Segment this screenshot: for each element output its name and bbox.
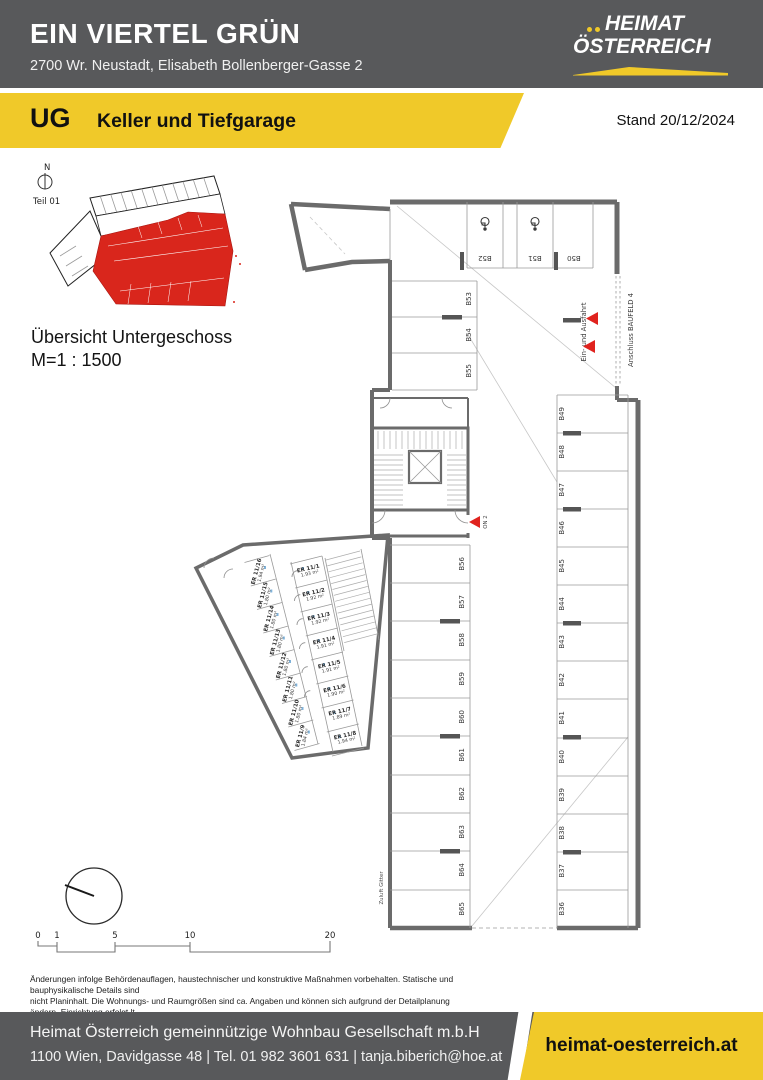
- entrance-number-label: ON 2: [483, 515, 489, 528]
- plan-date: Stand 20/12/2024: [617, 112, 735, 129]
- logo-word-heimat: HEIMAT: [605, 12, 684, 35]
- scale-tick: 1: [54, 931, 59, 941]
- drive-lane-lines: [397, 206, 628, 926]
- parking-label: B47: [557, 483, 566, 496]
- logo-word-oesterreich: ÖSTERREICH: [573, 35, 743, 58]
- parking-label: B60: [457, 710, 466, 724]
- header: EIN VIERTEL GRÜN 2700 Wr. Neustadt, Elis…: [0, 0, 763, 88]
- parking-label: B57: [457, 595, 466, 608]
- scale-bar: 0 1 5 10 20: [30, 928, 350, 958]
- compass-symbol: [58, 860, 130, 932]
- parking-label: B43: [557, 635, 566, 648]
- plan-document-page: EIN VIERTEL GRÜN 2700 Wr. Neustadt, Elis…: [0, 0, 763, 1080]
- parking-column-right: B49 B48 B47 B46 B45 B44 B43 B42 B41 B40 …: [557, 395, 628, 928]
- project-title: EIN VIERTEL GRÜN: [30, 18, 300, 50]
- project-address: 2700 Wr. Neustadt, Elisabeth Bollenberge…: [30, 58, 363, 74]
- floor-plan: B52 B51 B50 B53 B54 B55 Ein- und Ausfahr…: [190, 192, 650, 940]
- footer-website-banner: heimat-oesterreich.at: [520, 1012, 763, 1080]
- footer-contact: 1100 Wien, Davidgasse 48 | Tel. 01 982 3…: [30, 1049, 502, 1065]
- level-code: UG: [30, 103, 71, 134]
- website-link[interactable]: heimat-oesterreich.at: [545, 1035, 737, 1057]
- storage-annex: ER 11/1 1.93 m² ER 11/2 1.92 m² ER 11/3 …: [196, 535, 388, 758]
- stairwell: ON 2: [372, 398, 489, 538]
- parking-label: B36: [557, 902, 566, 916]
- parking-label: B40: [557, 750, 566, 764]
- entry-exit-label: Ein- und Ausfahrt: [580, 302, 588, 361]
- baufeld-label: Anschluss BAUFELD 4: [627, 293, 635, 367]
- parking-label: B51: [528, 254, 541, 263]
- parking-label: B54: [464, 328, 473, 342]
- zuluft-gitter-label: Zuluft Gitter: [379, 871, 385, 905]
- parking-label: B45: [557, 559, 566, 572]
- parking-label: B65: [457, 902, 466, 915]
- scale-tick: 20: [325, 931, 336, 941]
- parking-label: B52: [478, 254, 491, 263]
- part-label: Teil 01: [32, 197, 60, 207]
- garage-walls: [372, 202, 638, 928]
- parking-label: B58: [457, 633, 466, 647]
- parking-label: B39: [557, 788, 566, 802]
- logo-swoosh-icon: [573, 66, 728, 76]
- level-title: Keller und Tiefgarage: [97, 110, 296, 133]
- umlaut-dots-icon: [587, 27, 600, 32]
- scale-tick: 5: [112, 931, 117, 941]
- entry-ramp: [291, 204, 390, 270]
- scale-tick: 0: [35, 931, 40, 941]
- parking-label: B42: [557, 673, 566, 686]
- entry-exit-annotation: Ein- und Ausfahrt Anschluss BAUFELD 4: [563, 293, 635, 367]
- parking-label: B44: [557, 597, 566, 611]
- parking-column-left: B56 B57 B58 B59 B60 B61 B62 B63 B64 B65: [390, 545, 470, 928]
- parking-label: B55: [464, 364, 473, 377]
- level-banner: UG Keller und Tiefgarage Stand 20/12/202…: [0, 93, 763, 148]
- parking-label: B41: [557, 711, 566, 724]
- parking-label: B63: [457, 825, 466, 838]
- heimat-oesterreich-logo: HEIMAT ÖSTERREICH: [573, 12, 743, 81]
- parking-label: B37: [557, 864, 566, 877]
- parking-label: B50: [567, 254, 581, 263]
- parking-label: B49: [557, 407, 566, 421]
- north-label: N: [44, 163, 50, 173]
- parking-label: B48: [557, 445, 566, 459]
- parking-label: B38: [557, 826, 566, 840]
- footer: Heimat Österreich gemeinnützige Wohnbau …: [0, 1012, 763, 1080]
- parking-label: B53: [464, 292, 473, 305]
- parking-label: B61: [457, 748, 466, 761]
- parking-label: B56: [457, 557, 466, 571]
- disclaimer-line: Änderungen infolge Behördenauflagen, hau…: [30, 974, 480, 996]
- parking-label: B62: [457, 787, 466, 800]
- entrance-arrow-icon: [469, 516, 480, 528]
- parking-label: B64: [457, 863, 466, 877]
- parking-column-left-upper: B53 B54 B55: [392, 281, 477, 390]
- parking-row-top: B52 B51 B50: [460, 202, 593, 270]
- scale-tick: 10: [185, 931, 196, 941]
- wheelchair-icon: [481, 218, 489, 231]
- wheelchair-icon: [531, 218, 539, 231]
- footer-company: Heimat Österreich gemeinnützige Wohnbau …: [30, 1024, 480, 1042]
- parking-label: B59: [457, 672, 466, 686]
- parking-label: B46: [557, 521, 566, 535]
